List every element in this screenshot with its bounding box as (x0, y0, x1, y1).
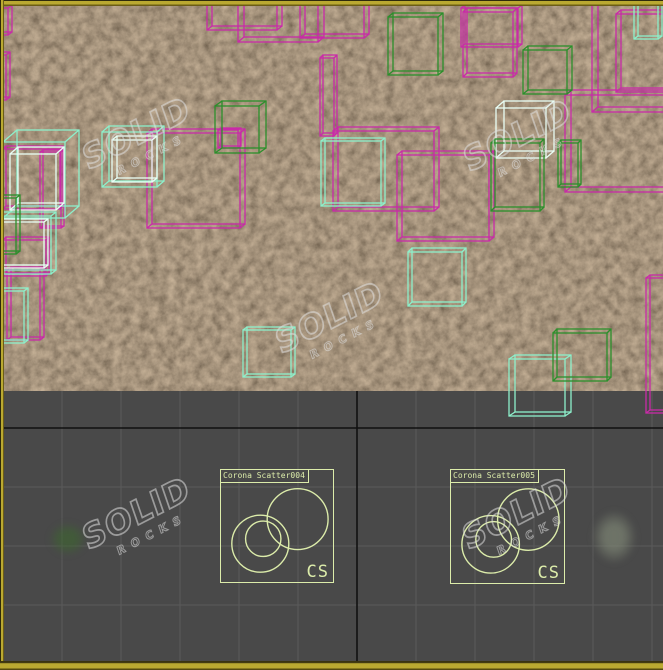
solidrocks-watermark: SOLIDROCKS (426, 80, 616, 220)
solidrocks-watermark: SOLIDROCKS (45, 78, 235, 218)
solidrocks-watermark: SOLIDROCKS (238, 262, 428, 402)
scatter-cs-monogram: CS (307, 564, 329, 581)
active-viewport-border-bottom (0, 661, 663, 670)
solidrocks-watermark: SOLIDROCKS (425, 458, 615, 598)
3d-viewport[interactable]: Corona Scatter004 CS Corona Scatter005 C… (0, 0, 663, 670)
active-viewport-border-top (0, 0, 663, 6)
active-viewport-border-left (0, 0, 4, 670)
solidrocks-watermark: SOLIDROCKS (45, 458, 235, 598)
corona-scatter004-helper[interactable]: Corona Scatter004 CS (220, 469, 334, 583)
